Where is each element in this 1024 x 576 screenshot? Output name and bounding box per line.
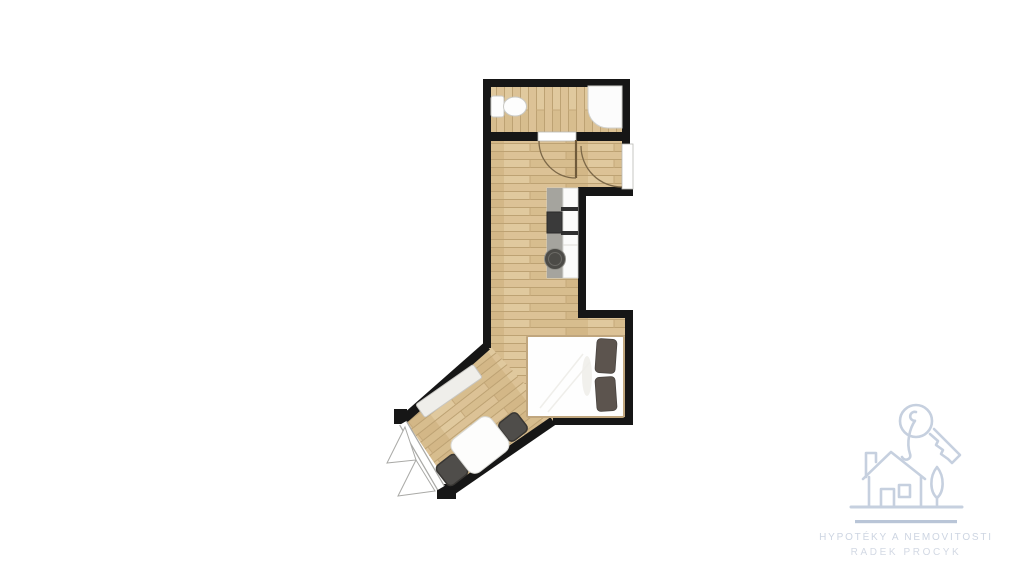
house-roof-icon [863, 452, 925, 479]
pillow-left [595, 338, 617, 373]
house-window-icon [899, 485, 910, 497]
kitchenette [545, 188, 579, 278]
pillow-right [595, 376, 617, 411]
bathroom-door-threshold [538, 132, 576, 141]
watermark-logo [851, 405, 962, 523]
house-door-icon [881, 489, 894, 507]
floorplan-page: HYPOTÉKY A NEMOVITOSTI RADEK PROCYK [0, 0, 1024, 576]
wall-corridor-east [578, 196, 586, 312]
wall-bathroom-bottom-left [483, 132, 538, 141]
cooktop [547, 212, 562, 233]
cabinet-handle-top [561, 207, 578, 211]
toilet-tank [491, 96, 504, 117]
logo-underline [855, 520, 957, 523]
floor-plan-svg [0, 0, 1024, 576]
wall-bedroom-south [553, 417, 633, 425]
key-bit-icon [930, 429, 960, 463]
wall-left [483, 79, 491, 348]
watermark-name-line: RADEK PROCYK [756, 545, 1024, 560]
bedroom-furniture [527, 336, 624, 417]
toilet-bowl [504, 97, 527, 116]
cabinet-handle-bottom [561, 231, 578, 235]
watermark-text: HYPOTÉKY A NEMOVITOSTI RADEK PROCYK [756, 530, 1024, 560]
entry-door-threshold [622, 144, 633, 189]
tree-icon [931, 467, 942, 505]
shower-tray [588, 86, 622, 128]
wall-bathroom-bottom-right [576, 132, 630, 141]
watermark-brand-line: HYPOTÉKY A NEMOVITOSTI [756, 530, 1024, 545]
wall-bedroom-east [625, 318, 633, 425]
duvet-fold [582, 356, 592, 396]
wall-window-corner-top [394, 409, 407, 424]
toilet [491, 96, 527, 117]
wall-bedroom-north [578, 310, 633, 318]
round-sink [545, 249, 566, 270]
